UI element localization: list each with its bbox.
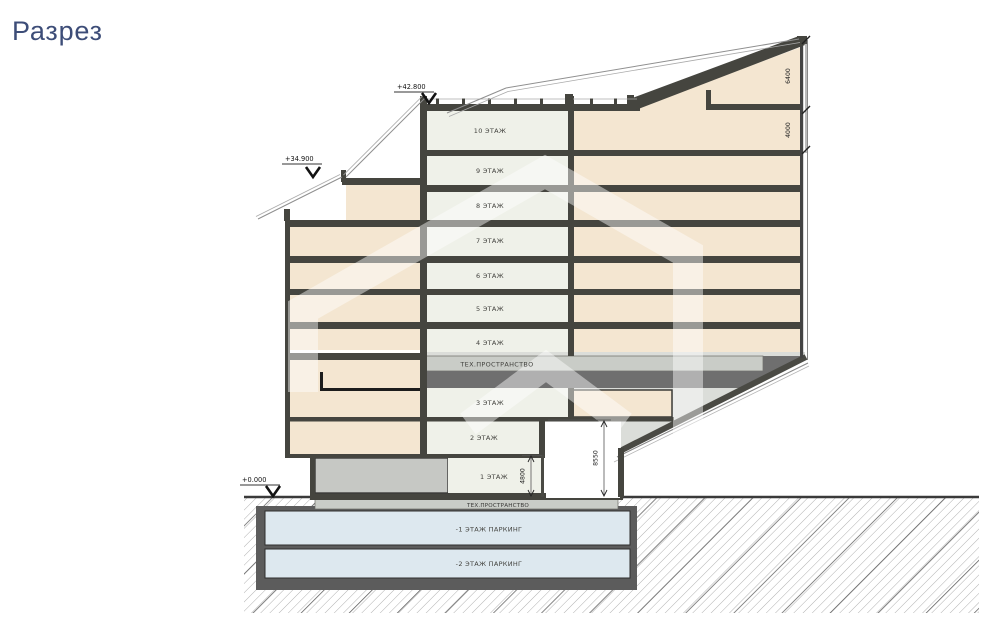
floor-label-10: 10 ЭТАЖ: [474, 127, 506, 135]
parking-level-2: [265, 549, 630, 578]
floor-label-4: 4 ЭТАЖ: [476, 339, 504, 347]
floor-label-1: 1 ЭТАЖ: [480, 473, 508, 481]
floor-label-5: 5 ЭТАЖ: [476, 305, 504, 313]
elevation-roof: +42.800: [397, 83, 426, 91]
dim-f1-height: 4800: [520, 468, 527, 484]
dim-attic-f10: 4000: [785, 122, 792, 138]
tech-space-label-upper: ТЕХ.ПРОСТРАНСТВО: [459, 361, 533, 369]
drawing-sheet: Разрез: [0, 0, 982, 629]
basement: [256, 493, 637, 590]
elevation-terrace: +34.900: [285, 155, 314, 163]
floor-label-2: 2 ЭТАЖ: [470, 434, 498, 442]
parking-label-2: -2 ЭТАЖ ПАРКИНГ: [456, 560, 523, 568]
dim-roof-attic: 6400: [785, 68, 792, 84]
tech-space-label-basement: ТЕХ.ПРОСТРАНСТВО: [466, 503, 529, 509]
floor-label-9: 9 ЭТАЖ: [476, 167, 504, 175]
elevation-ground: +0.000: [242, 476, 266, 484]
parking-label-1: -1 ЭТАЖ ПАРКИНГ: [456, 526, 523, 534]
floor-label-7: 7 ЭТАЖ: [476, 237, 504, 245]
section-drawing: 10 ЭТАЖ 9 ЭТАЖ 8 ЭТАЖ 7 ЭТАЖ 6 ЭТАЖ 5 ЭТ…: [0, 0, 982, 629]
floor-label-6: 6 ЭТАЖ: [476, 272, 504, 280]
first-floor-podium: [315, 458, 448, 493]
parking-level-1: [265, 511, 630, 545]
floor-label-3: 3 ЭТАЖ: [476, 399, 504, 407]
floor-label-8: 8 ЭТАЖ: [476, 202, 504, 210]
dim-entry-height: 8550: [593, 450, 600, 466]
